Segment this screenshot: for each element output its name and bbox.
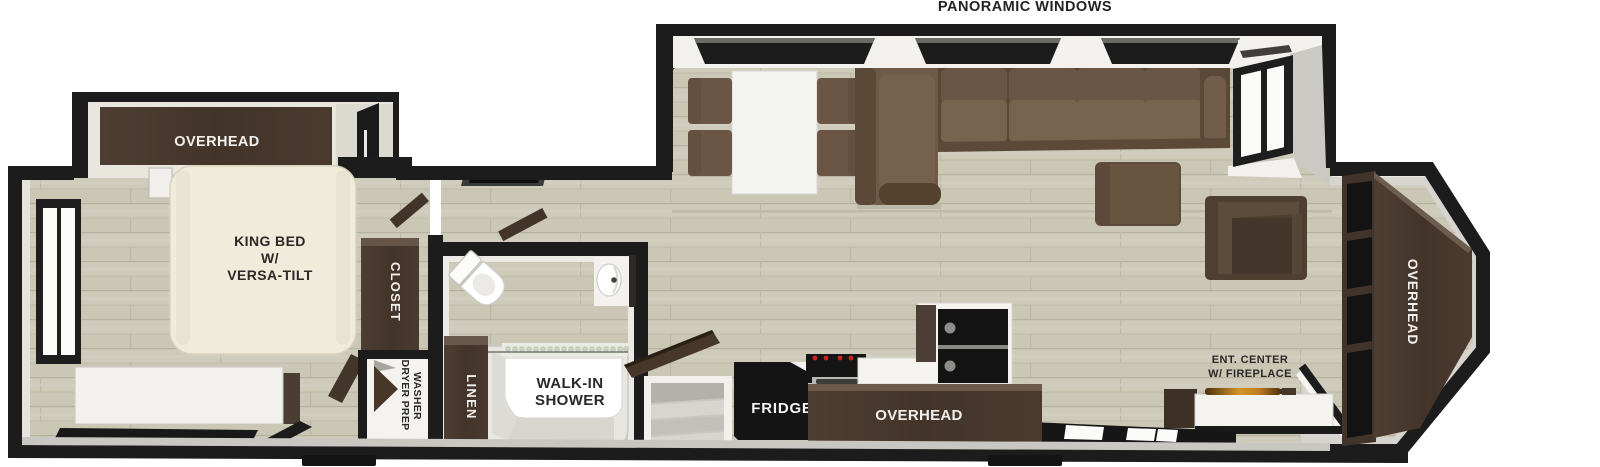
svg-text:FRIDGE: FRIDGE [751, 400, 812, 417]
svg-text:W/: W/ [261, 250, 279, 266]
svg-text:OVERHEAD: OVERHEAD [875, 407, 962, 424]
svg-text:OVERHEAD: OVERHEAD [1405, 259, 1421, 346]
svg-text:VERSA-TILT: VERSA-TILT [227, 267, 312, 283]
svg-text:W/ FIREPLACE: W/ FIREPLACE [1208, 368, 1292, 380]
svg-text:ENT. CENTER: ENT. CENTER [1212, 354, 1289, 366]
svg-text:DRYER PREP: DRYER PREP [399, 360, 411, 431]
svg-text:SHOWER: SHOWER [535, 392, 605, 409]
svg-text:WALK-IN: WALK-IN [537, 375, 604, 392]
svg-text:PANORAMIC WINDOWS: PANORAMIC WINDOWS [938, 0, 1112, 15]
svg-text:CLOSET: CLOSET [388, 262, 403, 322]
svg-text:KING BED: KING BED [234, 233, 306, 249]
svg-text:LINEN: LINEN [464, 374, 479, 420]
svg-text:WASHER: WASHER [411, 372, 423, 420]
svg-text:OVERHEAD: OVERHEAD [174, 134, 259, 150]
